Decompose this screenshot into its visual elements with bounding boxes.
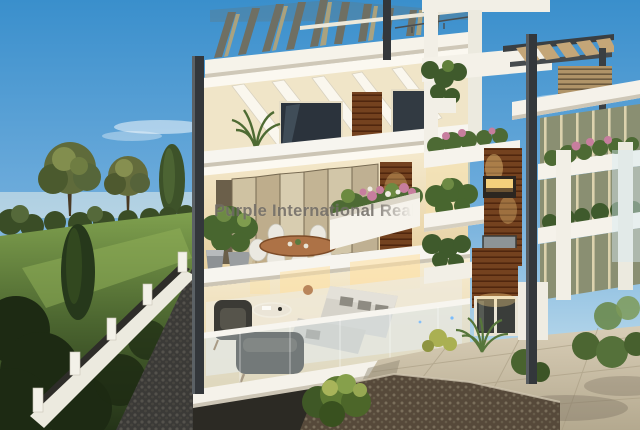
conifer-tree-lawn	[61, 224, 95, 320]
steel-column-roof	[383, 0, 391, 60]
render-canvas	[0, 0, 640, 430]
wall-light-glow	[499, 196, 517, 224]
far-wing	[538, 104, 640, 300]
pilaster	[556, 150, 571, 300]
cloud	[102, 131, 162, 141]
side-stool	[303, 285, 313, 295]
architectural-render: Purple International Real Estate	[0, 0, 640, 430]
planter-box	[426, 98, 456, 113]
haze-strip	[612, 150, 640, 262]
kitchen-window	[483, 176, 516, 198]
coffee-table	[253, 303, 291, 317]
door-light-glow	[476, 293, 516, 307]
frame-column	[468, 10, 482, 150]
frame-beam	[422, 0, 550, 12]
conifer-tree	[159, 144, 185, 216]
